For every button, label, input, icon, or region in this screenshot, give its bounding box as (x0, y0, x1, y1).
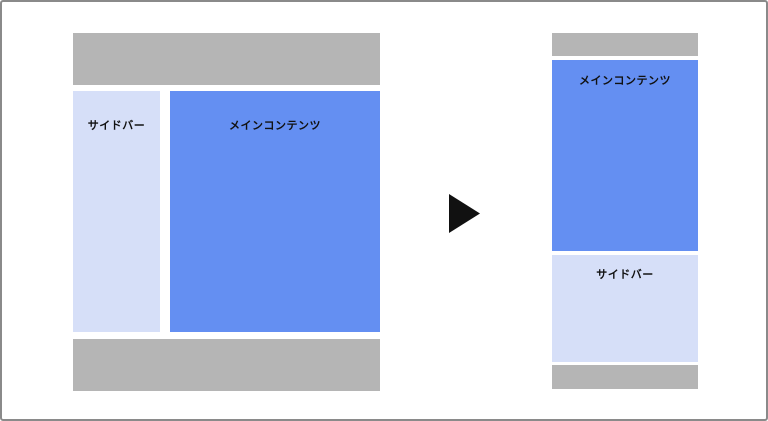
mobile-header-block (552, 33, 698, 56)
desktop-layout: サイドバー メインコンテンツ (73, 33, 380, 391)
desktop-main-content-label: メインコンテンツ (229, 117, 321, 133)
desktop-main-content-block: メインコンテンツ (170, 91, 380, 332)
mobile-main-content-label: メインコンテンツ (579, 72, 671, 88)
mobile-sidebar-label: サイドバー (596, 266, 654, 282)
mobile-sidebar-block: サイドバー (552, 255, 698, 362)
responsive-layout-diagram: サイドバー メインコンテンツ メインコンテンツ サイドバー (0, 0, 768, 421)
desktop-header-block (73, 33, 380, 85)
desktop-content-row: サイドバー メインコンテンツ (73, 91, 380, 332)
mobile-footer-block (552, 365, 698, 389)
mobile-layout: メインコンテンツ サイドバー (552, 33, 698, 389)
mobile-main-content-block: メインコンテンツ (552, 60, 698, 251)
desktop-sidebar-label: サイドバー (88, 117, 146, 133)
right-arrow-icon (449, 194, 480, 233)
desktop-footer-block (73, 339, 380, 391)
desktop-sidebar-block: サイドバー (73, 91, 160, 332)
